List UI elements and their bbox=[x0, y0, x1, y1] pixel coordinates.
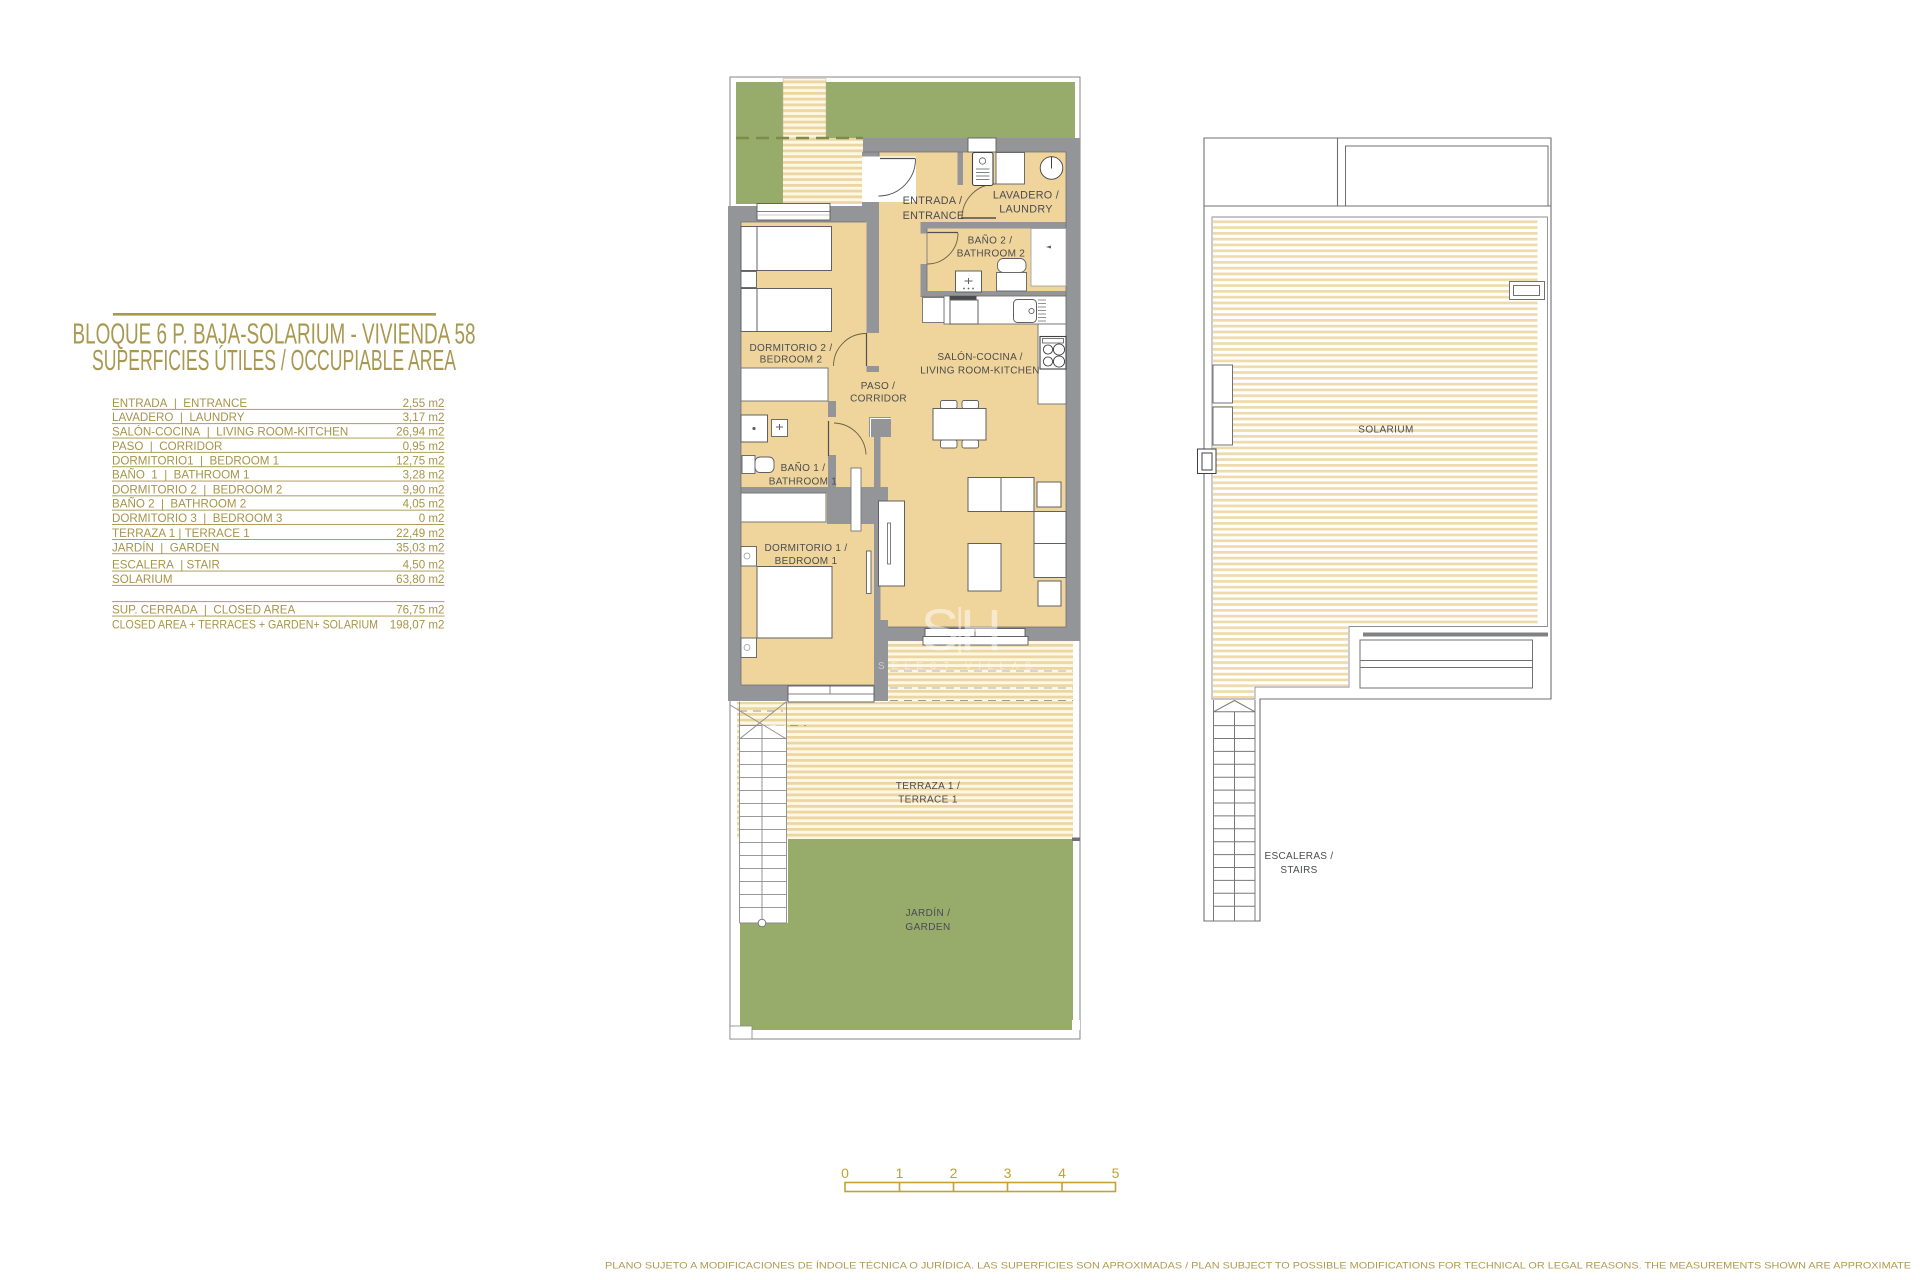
svg-text:LAVADERO /: LAVADERO / bbox=[993, 190, 1059, 202]
svg-text:DORMITORIO1 | BEDROOM 1: DORMITORIO1 | BEDROOM 1 bbox=[112, 454, 279, 467]
svg-text:0: 0 bbox=[841, 1165, 849, 1181]
svg-text:SOLARIUM: SOLARIUM bbox=[112, 573, 173, 586]
svg-text:BAÑO 1 | BATHROOM 1: BAÑO 1 | BATHROOM 1 bbox=[112, 469, 249, 482]
svg-text:5: 5 bbox=[1112, 1165, 1120, 1181]
svg-text:H: H bbox=[960, 598, 1002, 663]
svg-text:PLANO SUJETO A MODIFICACIONES: PLANO SUJETO A MODIFICACIONES DE ÍNDOLE … bbox=[605, 1261, 1911, 1272]
svg-text:DORMITORIO 3 | BEDROOM 3: DORMITORIO 3 | BEDROOM 3 bbox=[112, 512, 282, 525]
svg-text:LAVADERO | LAUNDRY: LAVADERO | LAUNDRY bbox=[112, 411, 245, 424]
svg-text:TERRAZA 1 /: TERRAZA 1 / bbox=[896, 781, 960, 792]
svg-text:3: 3 bbox=[1004, 1165, 1012, 1181]
svg-text:22,49 m2: 22,49 m2 bbox=[396, 527, 444, 540]
svg-text:SOLARIUM: SOLARIUM bbox=[1358, 425, 1413, 436]
svg-text:DORMITORIO 1 /: DORMITORIO 1 / bbox=[765, 543, 848, 554]
svg-text:3,17 m2: 3,17 m2 bbox=[403, 411, 445, 424]
svg-text:TERRACE 1: TERRACE 1 bbox=[898, 795, 958, 806]
svg-text:0,95 m2: 0,95 m2 bbox=[403, 440, 445, 453]
svg-text:SUPERFICIES ÚTILES / OCCUPIABL: SUPERFICIES ÚTILES / OCCUPIABLE AREA bbox=[92, 345, 456, 377]
svg-text:JARDÍN /: JARDÍN / bbox=[906, 906, 951, 919]
svg-text:9,90 m2: 9,90 m2 bbox=[403, 483, 445, 496]
svg-text:BATHROOM 1: BATHROOM 1 bbox=[769, 477, 838, 488]
svg-text:BEDROOM 2: BEDROOM 2 bbox=[760, 355, 823, 366]
svg-text:TERRAZA 1 | TERRACE 1: TERRAZA 1 | TERRACE 1 bbox=[112, 527, 250, 540]
svg-text:ESCALERAS /: ESCALERAS / bbox=[1265, 851, 1334, 862]
svg-text:2: 2 bbox=[950, 1165, 958, 1181]
svg-text:DORMITORIO 2 /: DORMITORIO 2 / bbox=[750, 343, 833, 354]
svg-text:SALÓN-COCINA | LIVING ROOM-K: SALÓN-COCINA | LIVING ROOM-KITCHEN bbox=[112, 426, 348, 439]
svg-text:S: S bbox=[921, 598, 960, 663]
svg-text:63,80 m2: 63,80 m2 bbox=[396, 573, 444, 586]
svg-text:0 m2: 0 m2 bbox=[419, 512, 445, 525]
svg-text:JARDÍN | GARDEN: JARDÍN | GARDEN bbox=[112, 541, 219, 554]
svg-text:BATHROOM 2: BATHROOM 2 bbox=[957, 249, 1026, 260]
svg-text:DORMITORIO 2 | BEDROOM 2: DORMITORIO 2 | BEDROOM 2 bbox=[112, 483, 282, 496]
svg-text:SELECT VILLAS: SELECT VILLAS bbox=[878, 661, 1038, 672]
svg-text:CLOSED AREA + TERRACES + GARDE: CLOSED AREA + TERRACES + GARDEN+ SOLARIU… bbox=[112, 618, 378, 631]
svg-text:ENTRANCE: ENTRANCE bbox=[903, 210, 965, 222]
svg-text:PASO /: PASO / bbox=[861, 381, 895, 392]
svg-text:CORRIDOR: CORRIDOR bbox=[850, 394, 907, 405]
svg-text:BAÑO 1 /: BAÑO 1 / bbox=[781, 461, 826, 474]
svg-text:BAÑO 2 | BATHROOM 2: BAÑO 2 | BATHROOM 2 bbox=[112, 498, 246, 511]
svg-text:26,94 m2: 26,94 m2 bbox=[396, 426, 444, 439]
svg-text:BEDROOM 1: BEDROOM 1 bbox=[775, 556, 838, 567]
svg-text:ESCALERA | STAIR: ESCALERA | STAIR bbox=[112, 559, 220, 572]
svg-text:76,75 m2: 76,75 m2 bbox=[396, 604, 444, 617]
svg-text:BAÑO 2 /: BAÑO 2 / bbox=[968, 234, 1013, 247]
svg-text:SUP. CERRADA | CLOSED AREA: SUP. CERRADA | CLOSED AREA bbox=[112, 604, 295, 617]
svg-text:2,55 m2: 2,55 m2 bbox=[403, 397, 445, 410]
svg-text:PASO | CORRIDOR: PASO | CORRIDOR bbox=[112, 440, 222, 453]
svg-text:LIVING ROOM-KITCHEN: LIVING ROOM-KITCHEN bbox=[920, 366, 1040, 377]
svg-text:SALÓN-COCINA /: SALÓN-COCINA / bbox=[937, 350, 1022, 363]
svg-text:3,28 m2: 3,28 m2 bbox=[403, 469, 445, 482]
svg-text:35,03 m2: 35,03 m2 bbox=[396, 541, 444, 554]
svg-text:12,75 m2: 12,75 m2 bbox=[396, 454, 444, 467]
svg-text:4,50 m2: 4,50 m2 bbox=[403, 559, 445, 572]
svg-text:4,05 m2: 4,05 m2 bbox=[403, 498, 445, 511]
svg-text:STAIRS: STAIRS bbox=[1280, 865, 1317, 876]
svg-text:LAUNDRY: LAUNDRY bbox=[999, 204, 1053, 216]
svg-text:ENTRADA /: ENTRADA / bbox=[903, 195, 963, 207]
svg-text:198,07 m2: 198,07 m2 bbox=[390, 618, 445, 631]
svg-text:4: 4 bbox=[1058, 1165, 1066, 1181]
svg-text:ENTRADA | ENTRANCE: ENTRADA | ENTRANCE bbox=[112, 397, 247, 410]
svg-text:1: 1 bbox=[896, 1165, 904, 1181]
svg-text:GARDEN: GARDEN bbox=[905, 922, 950, 933]
